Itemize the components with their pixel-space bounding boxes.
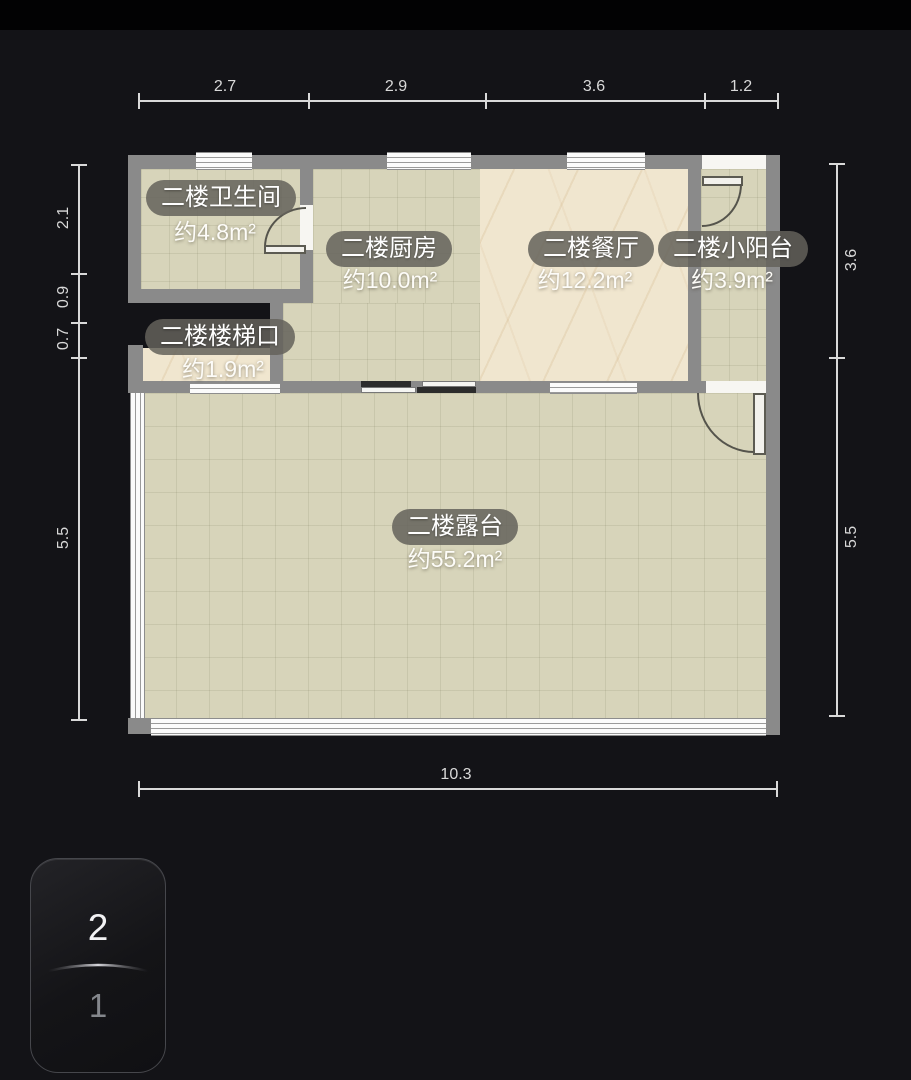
room-area: 约55.2m² xyxy=(408,540,503,574)
dim-tick xyxy=(308,93,310,109)
dim-label: 2.9 xyxy=(385,78,407,96)
door-leaf xyxy=(753,393,766,455)
door-opening xyxy=(706,381,766,393)
dim-label: 5.5 xyxy=(843,526,861,548)
dim-label: 1.2 xyxy=(730,78,752,96)
dim-tick xyxy=(71,164,87,166)
floor-selector: 2 1 xyxy=(30,858,166,1073)
dim-label: 0.7 xyxy=(55,328,73,350)
dim-tick xyxy=(777,93,779,109)
floorplan-screen: 二楼卫生间 约4.8m² 二楼厨房 约10.0m² 二楼餐厅 约12.2m² 二… xyxy=(0,0,911,1080)
dim-label: 10.3 xyxy=(440,766,471,784)
sliding-door-panel xyxy=(417,387,476,393)
dim-label: 5.5 xyxy=(55,527,73,549)
dim-tick xyxy=(829,163,845,165)
window xyxy=(196,152,252,170)
dim-line-left xyxy=(78,164,80,721)
dim-tick xyxy=(829,715,845,717)
window-band-left xyxy=(130,393,145,718)
wall-corner-post xyxy=(128,718,151,734)
dim-tick xyxy=(71,357,87,359)
dim-tick xyxy=(704,93,706,109)
dim-line-right xyxy=(836,163,838,717)
dim-label: 2.7 xyxy=(214,78,236,96)
room-area: 约10.0m² xyxy=(343,261,438,295)
window-band-bottom xyxy=(151,718,766,736)
room-label: 二楼卫生间 xyxy=(146,180,296,216)
floor-divider-arc xyxy=(43,957,153,975)
room-area: 约1.9m² xyxy=(182,350,264,384)
floor-button-1[interactable]: 1 xyxy=(31,987,165,1025)
dim-tick xyxy=(776,781,778,797)
dim-label: 3.6 xyxy=(583,78,605,96)
room-area: 约12.2m² xyxy=(538,261,633,295)
window xyxy=(550,382,637,394)
window xyxy=(387,152,471,170)
dim-tick xyxy=(71,719,87,721)
wall-bathroom-bottom xyxy=(128,289,313,303)
floor-button-2[interactable]: 2 xyxy=(31,907,165,949)
window xyxy=(190,383,280,394)
room-area: 约3.9m² xyxy=(691,261,773,295)
dim-label: 3.6 xyxy=(843,249,861,271)
room-area: 约4.8m² xyxy=(174,213,256,247)
sliding-door-panel xyxy=(361,387,416,393)
dim-line-bottom xyxy=(138,788,778,790)
room-kitchen-floor xyxy=(283,303,480,381)
dim-tick xyxy=(485,93,487,109)
dim-tick xyxy=(71,322,87,324)
dim-label: 2.1 xyxy=(55,207,73,229)
window xyxy=(567,152,645,170)
floor-plan-canvas[interactable]: 二楼卫生间 约4.8m² 二楼厨房 约10.0m² 二楼餐厅 约12.2m² 二… xyxy=(0,0,911,845)
dim-label: 0.9 xyxy=(55,286,73,308)
dim-tick xyxy=(829,357,845,359)
door-leaf xyxy=(264,245,306,254)
door-opening xyxy=(702,155,766,169)
dim-line-top xyxy=(138,100,779,102)
dim-tick xyxy=(138,781,140,797)
dim-tick xyxy=(71,273,87,275)
dim-tick xyxy=(138,93,140,109)
wall-left-upper xyxy=(128,155,141,303)
